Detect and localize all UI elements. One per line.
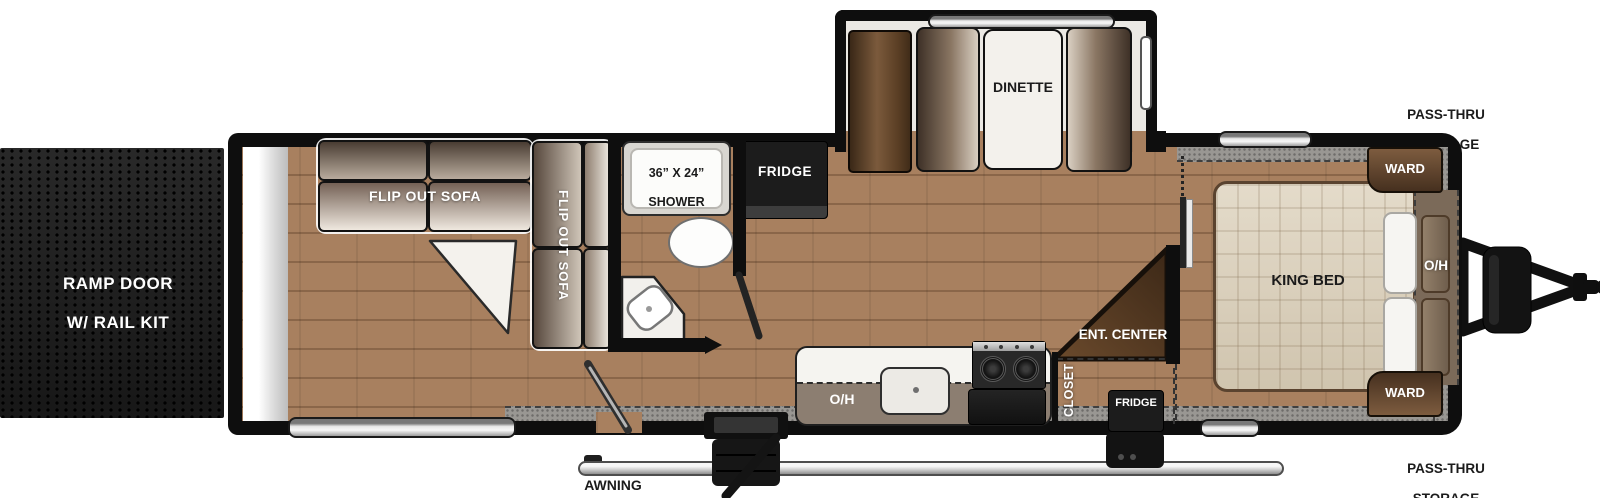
closet-label: CLOSET (1062, 361, 1084, 419)
hitch-a-frame (1455, 235, 1600, 345)
awning-label: AWNING (578, 477, 648, 493)
pillow (1383, 212, 1417, 294)
shower-label-line1: 36” X 24” (649, 166, 705, 180)
bathroom-wall-left (608, 133, 621, 352)
ent-center-wall (1166, 245, 1180, 364)
dinette-bench-left (916, 27, 980, 172)
pass-thru-storage-bottom-label: PASS-THRU STORAGE (1390, 446, 1502, 498)
wardrobe-top-label: WARD (1367, 162, 1443, 177)
bathroom-wall-endcap (705, 336, 725, 355)
flip-out-sofa-horizontal-label: FLIP OUT SOFA (330, 188, 520, 204)
stove-knob-icon (1015, 345, 1019, 349)
bathroom-wall-right (733, 133, 746, 276)
ent-center-cabinet (1048, 242, 1174, 366)
sofa-back-cushion (428, 140, 532, 181)
bedroom-window-top-icon (1218, 131, 1312, 148)
bedroom-entry-dashed-top (1181, 156, 1184, 196)
garage-window-icon (288, 417, 516, 438)
flip-out-sofa-horizontal (318, 140, 532, 232)
stove-control-strip (973, 342, 1045, 351)
pantry-cabinet (848, 30, 912, 173)
flip-out-sofa-vertical-label: FLIP OUT SOFA (540, 146, 570, 344)
pocket-door-panel (1186, 199, 1193, 268)
dinette-table (983, 29, 1063, 170)
ent-center-label: ENT. CENTER (1070, 327, 1176, 343)
bedroom-window-bottom-icon (1200, 419, 1260, 437)
floorplan-canvas: RAMP DOOR W/ RAIL KIT PANTRY DINETTE FLI… (0, 0, 1600, 498)
bed-overhead-label: O/H (1410, 258, 1462, 274)
pass-thru-top-line1: PASS-THRU (1407, 107, 1485, 122)
corner-sink (620, 275, 688, 344)
ramp-door-label: RAMP DOOR W/ RAIL KIT (20, 254, 216, 332)
slideout-window-icon (928, 14, 1115, 29)
dinette-bench-right (1066, 27, 1132, 172)
kitchen-sink (880, 367, 950, 415)
stove-knob-icon (1030, 345, 1034, 349)
dinette-label: DINETTE (968, 79, 1078, 95)
sofa-back-cushion (318, 140, 428, 181)
stove-knob-icon (999, 345, 1003, 349)
stove-cooktop (972, 341, 1046, 389)
closet-wall-left (1052, 352, 1058, 424)
bed-overhead-door (1421, 298, 1450, 376)
oven (968, 389, 1046, 425)
pillow (1383, 297, 1417, 378)
fridge-main-base (743, 206, 827, 218)
triangle-table (427, 239, 519, 336)
kitchen-overhead-label: O/H (812, 391, 872, 407)
shower-label: 36” X 24” SHOWER (622, 152, 731, 210)
fridge-main-label: FRIDGE (742, 164, 828, 180)
burner-icon (1013, 356, 1039, 382)
entry-door (580, 358, 638, 438)
pass-thru-bottom-line1: PASS-THRU (1407, 461, 1485, 476)
shower-label-line2: SHOWER (648, 195, 704, 209)
fridge-main (742, 141, 828, 219)
ramp-door-label-line1: RAMP DOOR (63, 274, 173, 293)
slideout-side-window-icon (1140, 36, 1152, 110)
king-bed-label: KING BED (1238, 272, 1378, 289)
awning-bar (578, 461, 1284, 476)
faucet-icon (913, 387, 919, 393)
entry-step-handle (712, 430, 786, 498)
bedroom-entry-steps (1106, 432, 1164, 468)
bedroom-entry-dashed-bottom (1175, 364, 1177, 420)
stove-knob-icon (984, 345, 988, 349)
bathroom-door (733, 270, 767, 344)
toilet (668, 217, 734, 268)
ramp-door-label-line2: W/ RAIL KIT (67, 313, 169, 332)
step-dot-icon (1118, 454, 1124, 460)
bathroom-wall-bottom (608, 338, 708, 352)
pass-thru-bottom-line2: STORAGE (1413, 491, 1480, 498)
ramp-opening-threshold (243, 147, 288, 421)
step-dot-icon (1130, 454, 1136, 460)
burner-icon (980, 356, 1006, 382)
fridge-bedroom-label: FRIDGE (1108, 397, 1164, 410)
wall-stub-bedroom (1146, 131, 1166, 152)
bed-overhead-door (1421, 215, 1450, 293)
wardrobe-bottom-label: WARD (1367, 386, 1443, 401)
